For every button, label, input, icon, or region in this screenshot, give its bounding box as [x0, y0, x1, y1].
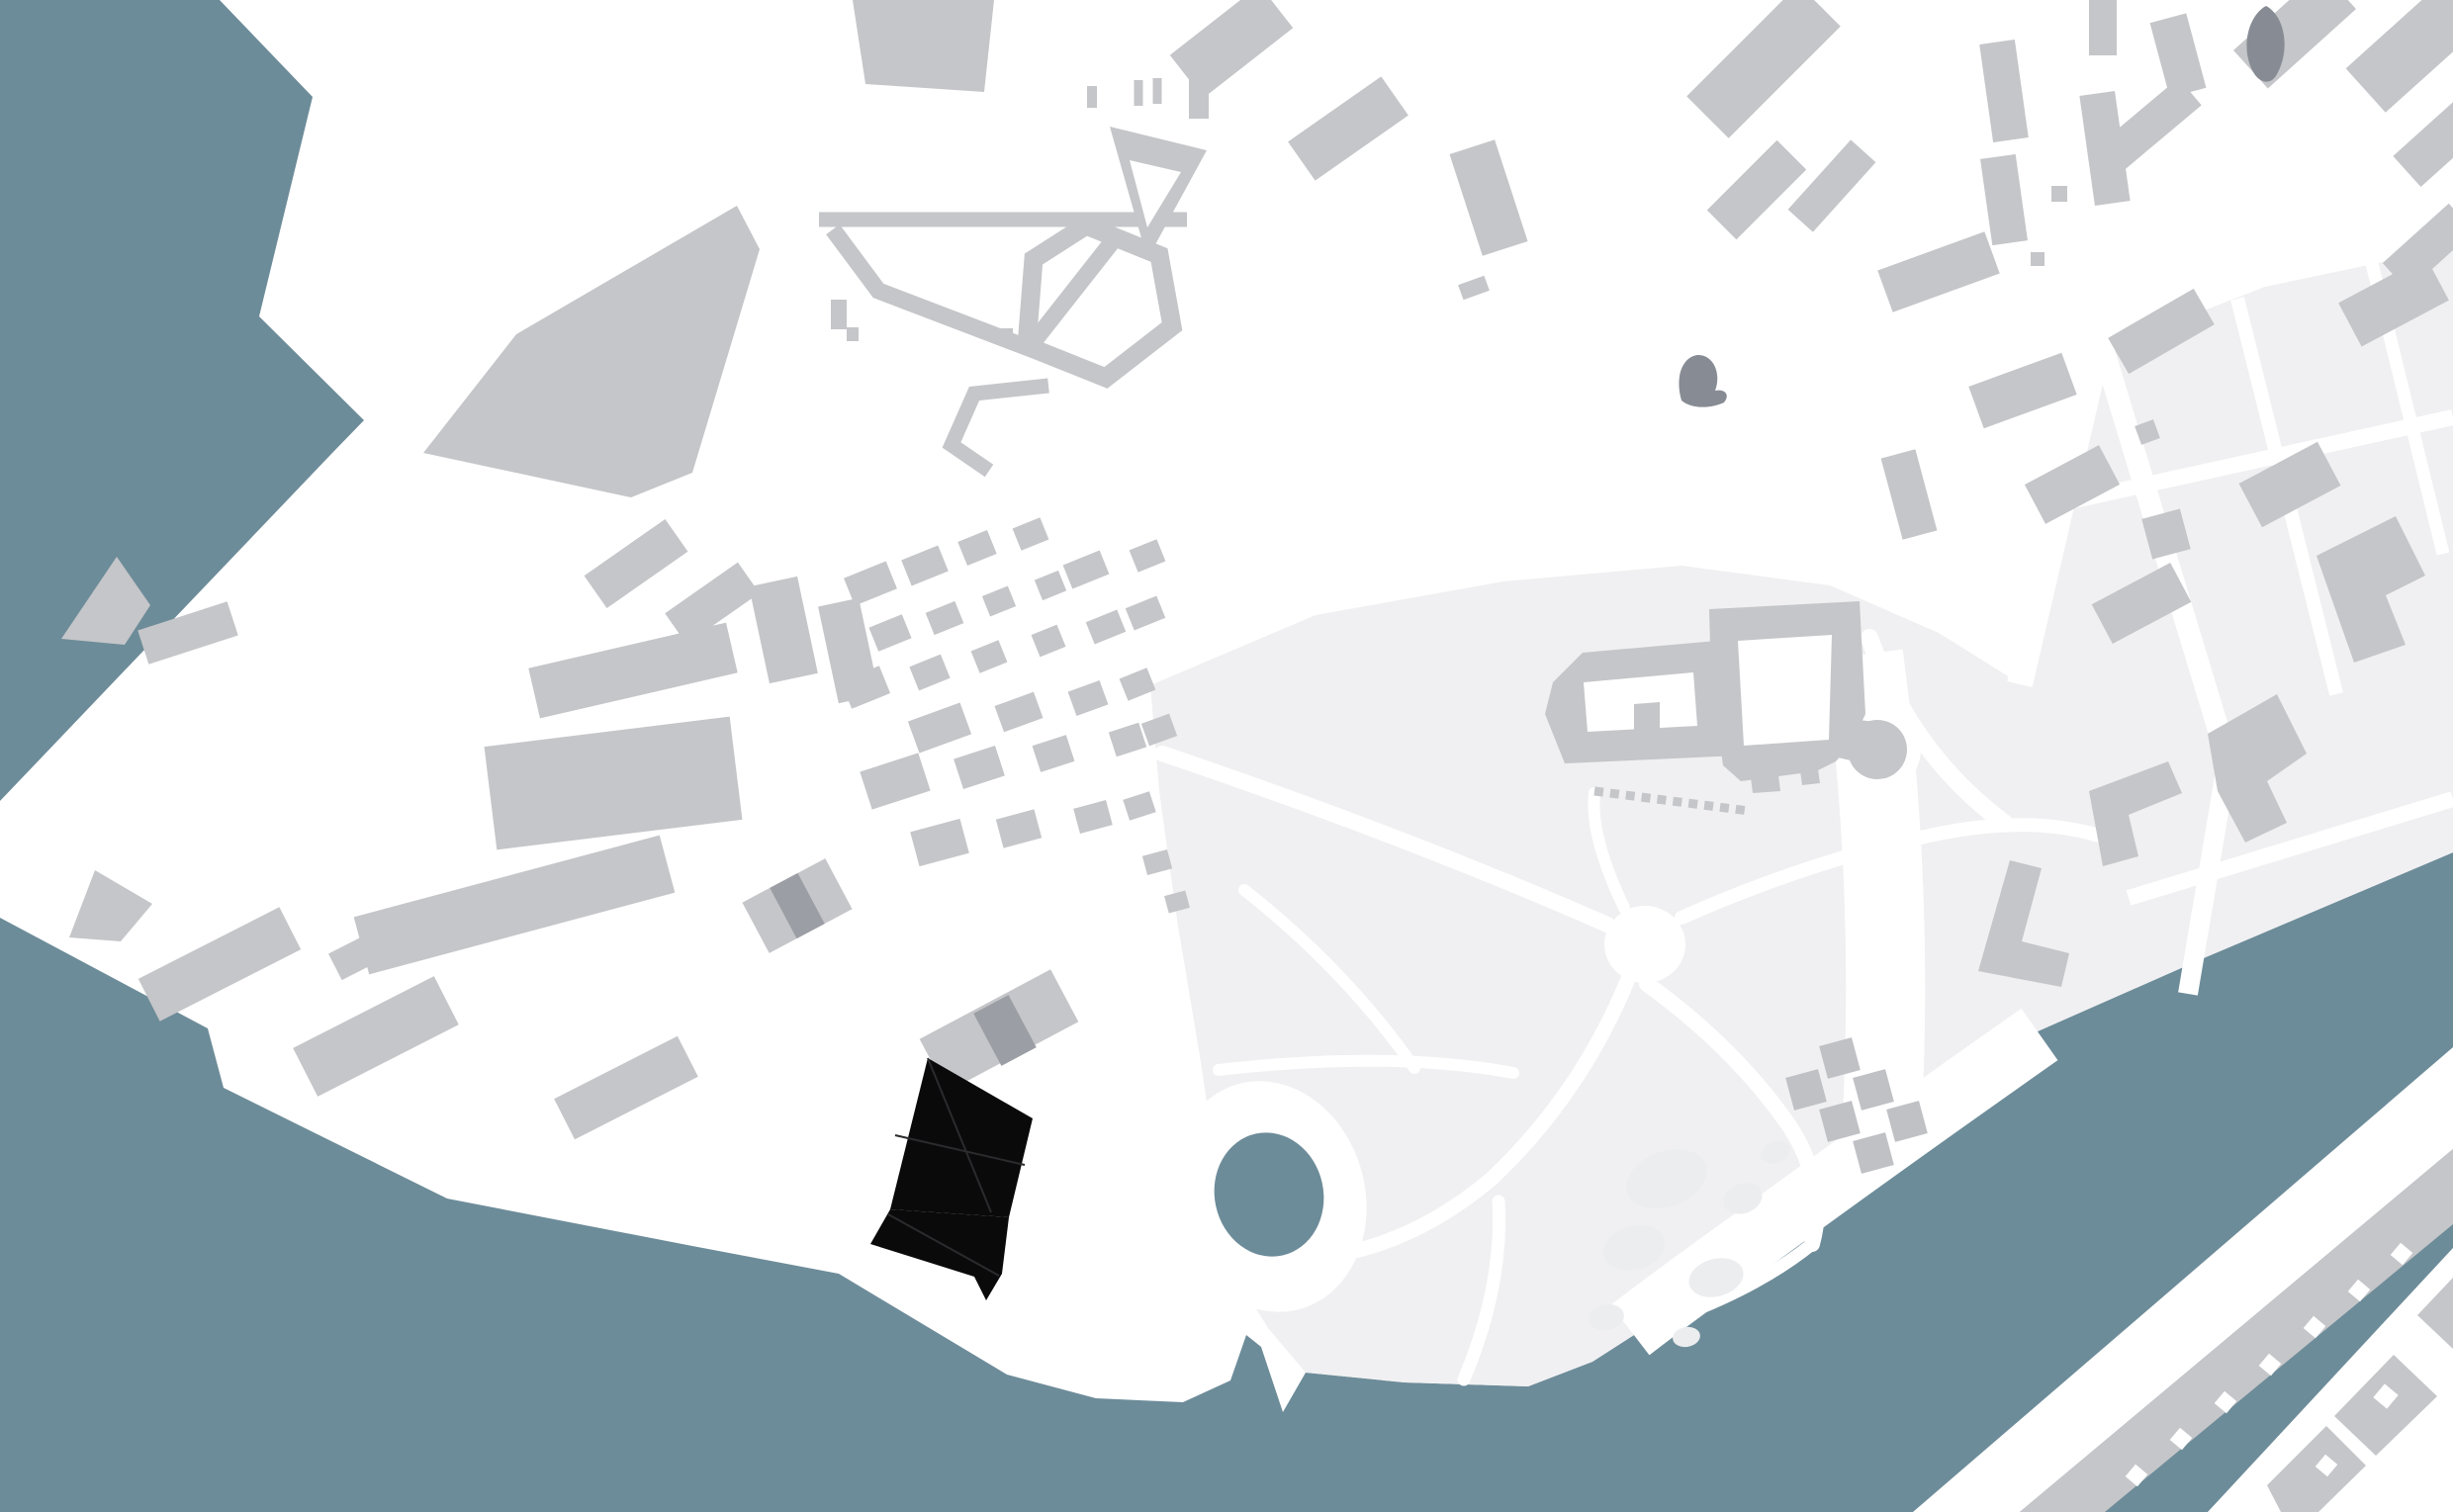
- building-blocks-21: [1035, 571, 1066, 600]
- building-blocks-18: [868, 614, 911, 652]
- castle-bastion: [1848, 720, 1907, 779]
- building-blocks-47: [831, 300, 847, 329]
- building-blocks-50: [1458, 276, 1490, 301]
- building-blocks-71: [1881, 449, 1938, 539]
- building-blocks-72: [2051, 186, 2067, 202]
- site-plan-map: [0, 0, 2453, 1512]
- building-blocks-70: [1877, 231, 1999, 312]
- building-blocks-40: [1073, 800, 1113, 834]
- organic-mound: [1679, 355, 1726, 407]
- building-blocks-61: [2089, 0, 2117, 55]
- castle-south-tab-1: [1751, 775, 1780, 793]
- building-blocks-30: [994, 692, 1043, 733]
- building-blocks-14: [957, 530, 996, 566]
- building-blocks-1: [528, 623, 737, 719]
- building-blocks-24: [909, 655, 950, 691]
- partial-ring-building: [952, 386, 1048, 471]
- building-blocks-4: [138, 907, 301, 1021]
- courtyard-tab: [1634, 702, 1660, 732]
- building-blocks-34: [954, 746, 1005, 789]
- building-blocks-26: [1032, 625, 1066, 658]
- building-blocks-57: [1979, 40, 2029, 142]
- building-blocks-13: [901, 546, 949, 586]
- building-blocks-25: [971, 640, 1008, 672]
- site-building: [870, 1058, 1033, 1300]
- building-blocks-27: [1086, 610, 1127, 645]
- large-depot-building: [423, 206, 760, 497]
- ring-buildings: [819, 220, 1187, 471]
- building-blocks-52: [1288, 76, 1408, 180]
- building-blocks-56: [1788, 139, 1876, 231]
- building-blocks-6: [293, 976, 459, 1097]
- building-blocks-49: [997, 328, 1013, 344]
- building-blocks-12: [844, 561, 897, 605]
- building-blocks-29: [908, 702, 971, 753]
- building-blocks-19: [926, 601, 964, 635]
- building-blocks-16: [1063, 550, 1110, 588]
- building-blocks-31: [1068, 680, 1109, 716]
- building-blocks-45: [1153, 78, 1162, 104]
- building-blocks-64: [2346, 0, 2453, 113]
- building-blocks-69: [1968, 353, 2076, 428]
- building-blocks-20: [982, 586, 1016, 617]
- building-blocks-38: [910, 819, 969, 866]
- building-blocks-22: [1126, 596, 1166, 631]
- building-blocks-37: [1123, 791, 1155, 821]
- building-blocks-51: [1170, 0, 1293, 98]
- building-blocks-17: [1130, 539, 1166, 572]
- building-blocks-3: [354, 836, 676, 975]
- building-blocks-15: [1013, 517, 1049, 550]
- building-blocks-2: [485, 717, 743, 850]
- building-blocks-48: [847, 327, 859, 341]
- north-edge-trapezoid: [853, 0, 994, 92]
- building-blocks-10: [749, 577, 818, 683]
- building-blocks-43: [1087, 86, 1097, 108]
- harbor-basin-northwest: [0, 0, 364, 801]
- building-blocks-55: [1707, 140, 1806, 239]
- keep-courtyard: [1738, 635, 1832, 746]
- building-blocks-73: [2031, 252, 2044, 266]
- castle-south-tab-2: [1800, 769, 1820, 785]
- coast-triangle-building: [69, 870, 152, 941]
- building-blocks-62: [2150, 13, 2207, 97]
- round-bastion: [1848, 720, 1907, 779]
- building-blocks-44: [1135, 80, 1143, 106]
- building-blocks-7: [554, 1036, 698, 1140]
- building-blocks-58: [1980, 154, 2028, 245]
- castle-courtyard-tab: [1634, 702, 1660, 732]
- building-blocks-8: [585, 519, 688, 608]
- building-blocks-39: [996, 809, 1042, 847]
- building-blocks-28: [1120, 667, 1156, 700]
- building-blocks-36: [1109, 723, 1146, 757]
- building-blocks-65: [2393, 100, 2453, 187]
- building-blocks-41: [1142, 849, 1172, 875]
- building-blocks-33: [860, 753, 930, 809]
- building-blocks-35: [1033, 735, 1075, 772]
- site-lower-volume: [870, 1209, 1009, 1300]
- trapezoid-courtyard-building: [833, 229, 1116, 348]
- building-blocks-54: [1686, 0, 1841, 138]
- map-canvas: [0, 0, 2453, 1512]
- building-blocks-53: [1449, 139, 1527, 256]
- striped-building-stripes: [770, 873, 1036, 1066]
- park-plaza: [1604, 906, 1685, 983]
- round-plaza: [1604, 906, 1685, 983]
